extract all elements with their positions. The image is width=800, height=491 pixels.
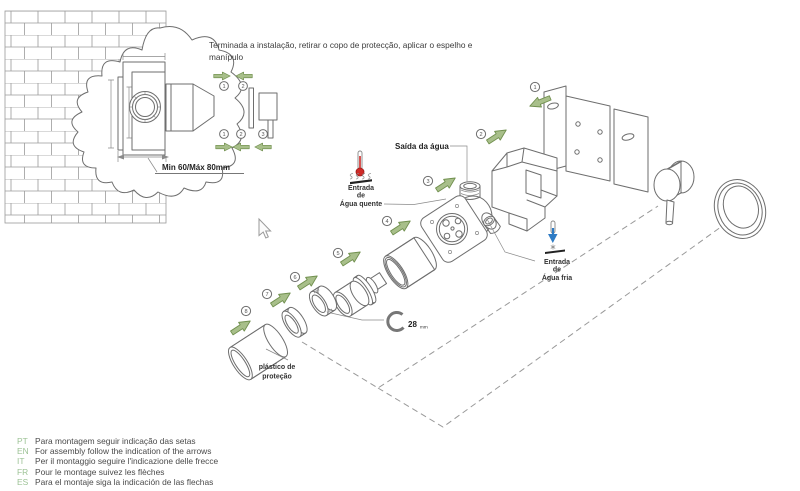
svg-text:de: de <box>553 267 561 274</box>
svg-text:Entrada: Entrada <box>544 259 570 266</box>
svg-text:Água fria: Água fria <box>542 273 572 282</box>
svg-text:1: 1 <box>222 132 225 138</box>
installation-manual-page: Min 60/Máx 80mm 1 2 1 2 3 <box>0 0 800 491</box>
hot-water-label: Entrada de Água quente <box>340 185 446 208</box>
step-marker: 4 <box>382 216 391 225</box>
outlet-label: Saída da água <box>395 142 449 151</box>
wrench-size-label: 28 <box>408 320 417 329</box>
svg-text:3: 3 <box>261 132 264 138</box>
lang-code: EN <box>17 446 35 456</box>
mounting-plate <box>544 86 648 192</box>
valve-section-circle <box>130 92 161 123</box>
lang-text: Per il montaggio seguire l'indicazione d… <box>35 456 218 466</box>
handle-knob <box>654 161 694 225</box>
step-marker: 3 <box>259 130 268 139</box>
language-instructions: PTPara montagem seguir indicação das set… <box>17 436 218 487</box>
step-arrow-icon <box>269 289 293 310</box>
step-arrow-icon <box>389 217 413 238</box>
housing-bracket <box>492 148 557 231</box>
step-marker: 2 <box>237 130 246 139</box>
outlet-label-group: Saída da água <box>395 142 467 182</box>
cold-water-label: Entrada de Água fria <box>542 259 572 282</box>
step-marker: 5 <box>333 248 342 257</box>
exploded-view: Saída da água Entrada de Água quente <box>224 82 774 427</box>
lang-row-fr: FRPour le montage suivez les flèches <box>17 467 218 477</box>
svg-text:1: 1 <box>222 84 225 90</box>
seal-ring <box>278 305 310 341</box>
dimension-label: Min 60/Máx 80mm <box>162 163 230 172</box>
lang-row-it: ITPer il montaggio seguire l'indicazione… <box>17 456 218 466</box>
cartridge <box>329 265 392 322</box>
trim-ring <box>706 172 774 245</box>
svg-text:3: 3 <box>426 179 429 185</box>
svg-text:7: 7 <box>265 292 268 298</box>
svg-text:2: 2 <box>241 84 244 90</box>
lang-code: IT <box>17 456 35 466</box>
lang-code: FR <box>17 467 35 477</box>
step-marker: 1 <box>220 130 229 139</box>
step-marker: 1 <box>220 82 229 91</box>
svg-text:de: de <box>357 193 365 200</box>
wrench-unit-label: mm <box>420 325 428 330</box>
lang-text: For assembly follow the indication of th… <box>35 446 211 456</box>
lang-row-en: ENFor assembly follow the indication of … <box>17 446 218 456</box>
lang-text: Pour le montage suivez les flèches <box>35 467 164 477</box>
instruction-note-line1: Terminada a instalação, retirar o copo d… <box>209 39 529 51</box>
cursor-icon <box>259 219 271 238</box>
svg-text:Água quente: Água quente <box>340 199 382 208</box>
trim-plate-side <box>249 88 254 128</box>
diagram-canvas: Min 60/Máx 80mm 1 2 1 2 3 <box>0 0 800 491</box>
step-arrow-left-icon <box>255 143 272 151</box>
instruction-note-line2: manípulo <box>209 51 529 63</box>
svg-text:5: 5 <box>336 251 339 257</box>
step-marker: 7 <box>262 289 271 298</box>
svg-text:2: 2 <box>239 132 242 138</box>
step-marker: 2 <box>476 129 485 138</box>
trim-plate-section <box>118 77 123 150</box>
svg-text:8: 8 <box>244 309 247 315</box>
step-marker: 6 <box>290 272 299 281</box>
svg-text:plástico de: plástico de <box>259 364 296 371</box>
step-marker: 8 <box>241 306 250 315</box>
svg-text:proteção: proteção <box>262 374 292 381</box>
step-arrow-icon <box>434 174 458 195</box>
step-marker: 1 <box>530 82 539 91</box>
snowflake-icon <box>551 245 555 250</box>
lang-code: ES <box>17 477 35 487</box>
lang-text: Para montagem seguir indicação das setas <box>35 436 196 446</box>
svg-text:2: 2 <box>479 132 482 138</box>
svg-text:Entrada: Entrada <box>348 185 374 192</box>
step-arrow-icon <box>229 317 253 338</box>
svg-text:4: 4 <box>385 219 388 225</box>
wrench-icon <box>388 312 404 330</box>
svg-text:1: 1 <box>533 85 536 91</box>
step-marker: 2 <box>239 82 248 91</box>
lang-text: Para el montaje siga la indicación de la… <box>35 477 213 487</box>
step-arrow-icon <box>485 126 509 147</box>
svg-text:6: 6 <box>293 275 296 281</box>
step-marker: 3 <box>423 176 432 185</box>
lang-row-pt: PTPara montagem seguir indicação das set… <box>17 436 218 446</box>
lang-code: PT <box>17 436 35 446</box>
instruction-note: Terminada a instalação, retirar o copo d… <box>209 39 529 63</box>
lang-row-es: ESPara el montaje siga la indicación de … <box>17 477 218 487</box>
hot-water-icon <box>350 151 372 184</box>
